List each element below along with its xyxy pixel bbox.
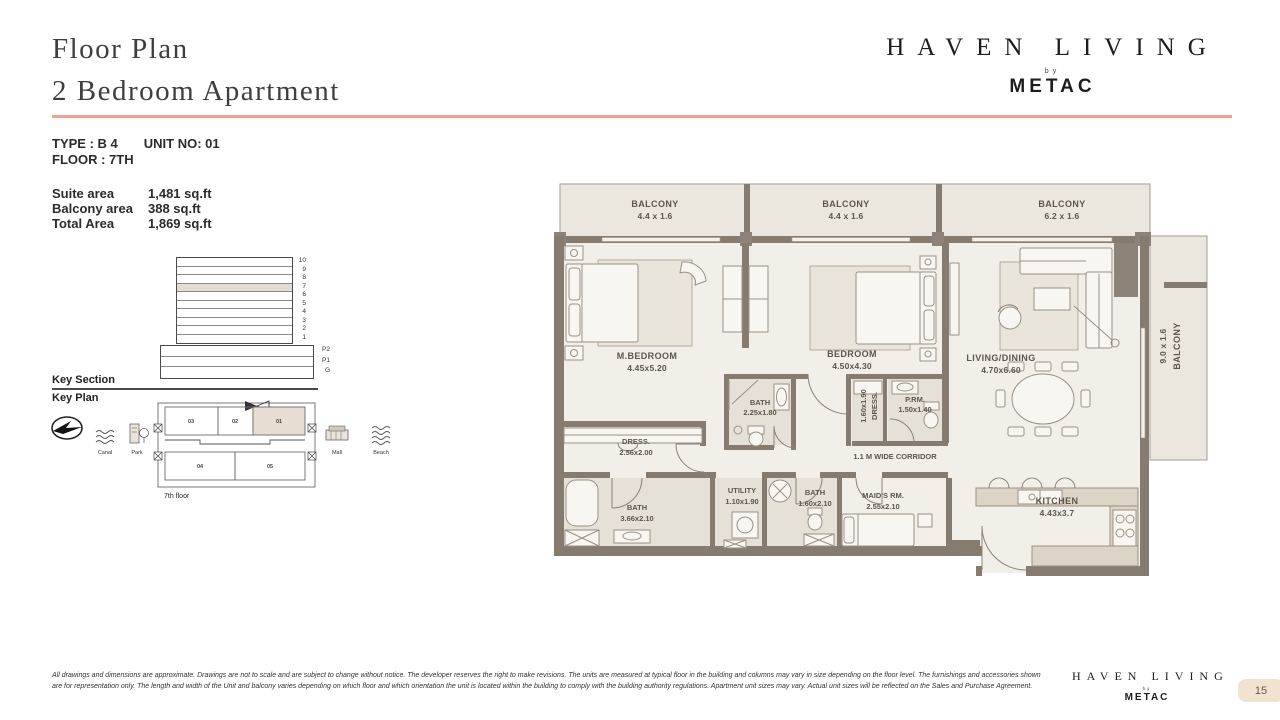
canal-label: Canal	[98, 450, 112, 456]
maids-room-dims: 2.55x2.10	[866, 502, 899, 511]
compass-icon	[52, 417, 82, 439]
kitchen-dims: 4.43x3.7	[1040, 508, 1075, 518]
dress-2-dims: 1.60x1.90	[859, 389, 868, 422]
unit-01-label: 01	[276, 419, 282, 425]
maids-room-label: MAID'S RM.	[862, 491, 904, 500]
dress-1-dims: 2.56x2.00	[619, 448, 652, 457]
brand-company: METAC	[870, 76, 1235, 98]
floor-number: 3	[302, 317, 306, 324]
brand-logo: HAVEN LIVING by METAC	[870, 34, 1235, 98]
tower-floor-row: 6	[177, 292, 292, 301]
floor-number: 4	[302, 308, 306, 315]
key-plan-diagram: Canal Park 03	[40, 400, 430, 508]
floor-number: 5	[302, 300, 306, 307]
dress-2-label: DRESS.	[870, 392, 879, 420]
podium-level-row: P1	[161, 357, 313, 368]
key-plan-building: 03 02 01 04 05	[154, 401, 316, 487]
balcony-1-dims: 4.4 x 1.6	[638, 211, 673, 221]
powder-room-label: P.RM.	[905, 395, 925, 404]
title-line-2: 2 Bedroom Apartment	[52, 70, 340, 112]
podium-level-row: P2	[161, 346, 313, 357]
podium-level-row: G	[161, 367, 313, 378]
floor-plan-drawing: BALCONY 4.4 x 1.6 BALCONY 4.4 x 1.6 BALC…	[552, 178, 1212, 585]
floor-number: 2	[302, 325, 306, 332]
tower-floor-row-highlighted: 7	[177, 284, 292, 293]
floor-number: 9	[302, 266, 306, 273]
floor-number: 10	[299, 257, 306, 264]
level-label: P2	[322, 346, 330, 353]
beach-icon	[372, 427, 390, 445]
bath-2-dims: 1.60x2.10	[798, 499, 831, 508]
area-table: Suite area 1,481 sq.ft Balcony area 388 …	[52, 186, 212, 231]
tower-floor-row: 10	[177, 258, 292, 267]
kitchen-label: KITCHEN	[1036, 496, 1079, 506]
park-icon	[130, 424, 149, 443]
ensuite-bath-label: BATH	[750, 398, 770, 407]
area-value: 388 sq.ft	[148, 201, 201, 216]
bedroom-label: BEDROOM	[827, 349, 877, 359]
floor-plan-page: Floor Plan 2 Bedroom Apartment HAVEN LIV…	[0, 0, 1280, 720]
area-row: Total Area 1,869 sq.ft	[52, 216, 212, 231]
utility-label: UTILITY	[728, 486, 756, 495]
main-bath-label: BATH	[627, 503, 647, 512]
disclaimer-text: All drawings and dimensions are approxim…	[52, 671, 1042, 692]
m-bedroom-dims: 4.45x5.20	[627, 363, 667, 373]
area-row: Balcony area 388 sq.ft	[52, 201, 212, 216]
area-row: Suite area 1,481 sq.ft	[52, 186, 212, 201]
footer-brand-logo: HAVEN LIVING by METAC	[1072, 669, 1222, 703]
footer-brand-name: HAVEN LIVING	[1072, 669, 1222, 684]
area-value: 1,481 sq.ft	[148, 186, 212, 201]
divider	[52, 388, 318, 390]
page-number-badge: 15	[1238, 679, 1280, 702]
utility-dims: 1.10x1.90	[725, 497, 758, 506]
key-section-title: Key Section	[52, 374, 115, 386]
tower-floor-row: 1	[177, 335, 292, 344]
tower-floor-row: 5	[177, 301, 292, 310]
main-bath-dims: 3.66x2.10	[620, 514, 653, 523]
unit-info: TYPE : B 4UNIT NO: 01 FLOOR : 7TH	[52, 136, 246, 168]
tower-floor-row: 2	[177, 326, 292, 335]
footer-brand-by: by	[1072, 686, 1222, 691]
page-title: Floor Plan 2 Bedroom Apartment	[52, 28, 340, 112]
unit-04-label: 04	[197, 464, 204, 470]
level-label: G	[325, 367, 330, 374]
balcony-right-label: BALCONY	[1172, 322, 1182, 369]
balcony-right-dims: 9.0 x 1.6	[1158, 328, 1168, 363]
area-label: Suite area	[52, 186, 148, 201]
bath-2-label: BATH	[805, 488, 825, 497]
unit-03-label: 03	[188, 419, 194, 425]
footer-brand-company: METAC	[1072, 692, 1222, 703]
floor-number: 6	[302, 291, 306, 298]
area-label: Total Area	[52, 216, 148, 231]
balcony-2-label: BALCONY	[822, 199, 869, 209]
living-dining-label: LIVING/DINING	[966, 353, 1035, 363]
mall-label: Mall	[332, 450, 342, 456]
brand-name: HAVEN LIVING	[870, 34, 1235, 62]
level-label: P1	[322, 357, 330, 364]
area-label: Balcony area	[52, 201, 148, 216]
balcony-1-label: BALCONY	[631, 199, 678, 209]
unit-type: TYPE : B 4	[52, 136, 118, 151]
tower-floor-row: 9	[177, 267, 292, 276]
tower-floor-row: 3	[177, 318, 292, 327]
unit-05-label: 05	[267, 464, 273, 470]
canal-icon	[96, 431, 114, 444]
bedroom-dims: 4.50x4.30	[832, 361, 872, 371]
tower-floor-row: 4	[177, 309, 292, 318]
powder-room-dims: 1.50x1.40	[898, 405, 931, 414]
key-plan-floor-label: 7th floor	[164, 493, 190, 500]
accent-divider	[52, 115, 1232, 118]
floor-number: 1	[302, 334, 306, 341]
title-line-1: Floor Plan	[52, 28, 340, 70]
unit-02-label: 02	[232, 419, 238, 425]
living-dining-dims: 4.70x6.60	[981, 365, 1021, 375]
key-section-tower: 10 9 8 7 6 5 4 3 2 1	[176, 257, 293, 344]
m-bedroom-label: M.BEDROOM	[617, 351, 678, 361]
beach-label: Beach	[373, 450, 389, 456]
corridor-label: 1.1 M WIDE CORRIDOR	[853, 452, 937, 461]
floor-number: 7	[302, 283, 306, 290]
brand-by: by	[870, 68, 1235, 75]
balcony-2-dims: 4.4 x 1.6	[829, 211, 864, 221]
ensuite-bath-dims: 2.25x1.80	[743, 408, 776, 417]
tower-floor-row: 8	[177, 275, 292, 284]
floor-number: 8	[302, 274, 306, 281]
balcony-3-dims: 6.2 x 1.6	[1045, 211, 1080, 221]
dress-1-label: DRESS.	[622, 437, 650, 446]
unit-number: UNIT NO: 01	[144, 136, 220, 151]
unit-floor: FLOOR : 7TH	[52, 152, 246, 168]
area-value: 1,869 sq.ft	[148, 216, 212, 231]
mall-icon	[326, 426, 348, 440]
park-label: Park	[131, 450, 143, 456]
balcony-3-label: BALCONY	[1038, 199, 1085, 209]
key-section-podium: P2 P1 G	[160, 345, 314, 379]
